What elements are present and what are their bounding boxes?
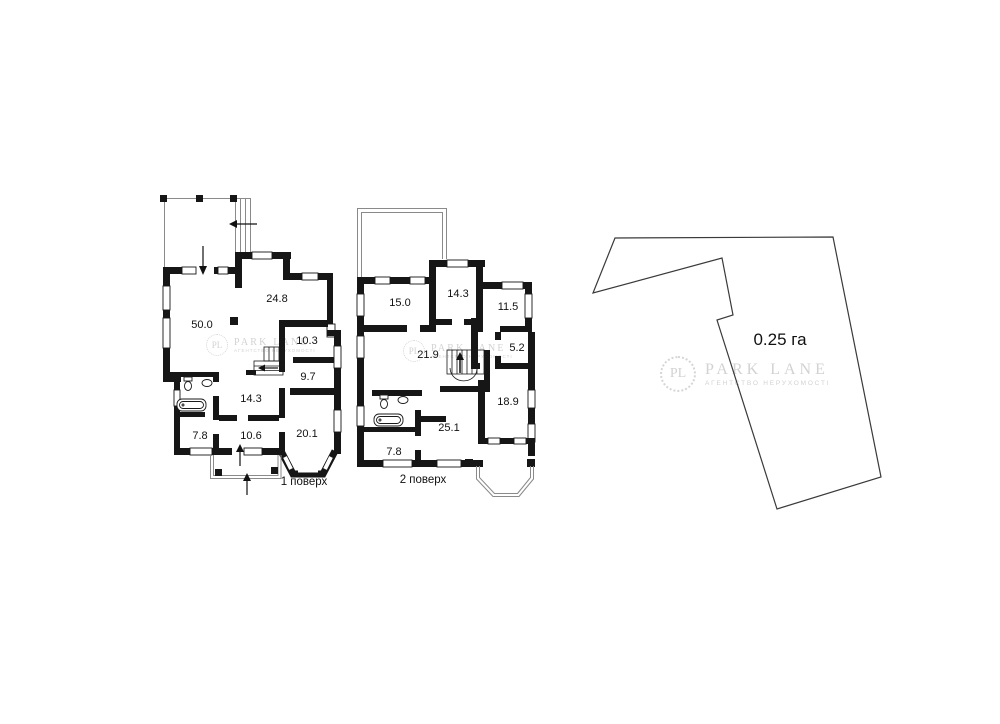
floor1-terrace: [160, 195, 251, 267]
floor2-toilet-icon: [380, 395, 388, 409]
room-area-label: 15.0: [389, 297, 410, 309]
floor2-balcony: [358, 209, 447, 278]
floor1-bay-window: [281, 451, 335, 474]
watermark-subtitle: АГЕНТСТВО НЕРУХОМОСТІ: [431, 354, 513, 359]
room-area-label: 7.8: [192, 430, 207, 442]
watermark-subtitle: АГЕНТСТВО НЕРУХОМОСТІ: [705, 380, 830, 387]
room-area-label: 5.2: [509, 342, 524, 354]
room-area-label: 9.7: [300, 371, 315, 383]
room-area-label: 24.8: [266, 293, 287, 305]
room-area-label: 25.1: [438, 422, 459, 434]
room-area-label: 21.9: [417, 349, 438, 361]
room-area-label: 10.3: [296, 335, 317, 347]
watermark-subtitle: АГЕНТСТВО НЕРУХОМОСТІ: [234, 348, 316, 353]
plot-area-label: 0.25 га: [753, 330, 806, 350]
room-area-label: 10.6: [240, 430, 261, 442]
floor1-sink-icon: [202, 380, 212, 387]
floor1-toilet-icon: [184, 377, 192, 391]
floor1-entrance-arrows: [199, 220, 257, 495]
floor2-walls: [357, 260, 535, 467]
room-area-label: 14.3: [447, 288, 468, 300]
park-lane-logo-icon: PL: [660, 356, 696, 392]
floor1-caption: 1 поверх: [281, 476, 328, 488]
plan-drawing: [0, 0, 1000, 724]
watermark-title: PARK LANE: [431, 343, 513, 354]
floor-plan-page: PL PARK LANE АГЕНТСТВО НЕРУХОМОСТІ PL PA…: [0, 0, 1000, 724]
park-lane-logo-icon: PL: [206, 334, 228, 356]
room-area-label: 50.0: [191, 319, 212, 331]
room-area-label: 11.5: [498, 301, 519, 313]
watermark-title: PARK LANE: [705, 361, 830, 379]
room-area-label: 14.3: [240, 393, 261, 405]
room-area-label: 7.8: [386, 446, 401, 458]
room-area-label: 20.1: [296, 428, 317, 440]
floor1-bathtub-icon: [177, 399, 206, 411]
room-area-label: 18.9: [497, 396, 518, 408]
floor2-sink-icon: [398, 397, 408, 404]
park-lane-watermark: PL PARK LANE АГЕНТСТВО НЕРУХОМОСТІ: [660, 356, 830, 392]
floor2-caption: 2 поверх: [400, 474, 447, 486]
floor2-bathtub-icon: [374, 414, 403, 426]
floor1-porch: [211, 455, 282, 479]
floor2-bay-roof: [477, 466, 534, 497]
